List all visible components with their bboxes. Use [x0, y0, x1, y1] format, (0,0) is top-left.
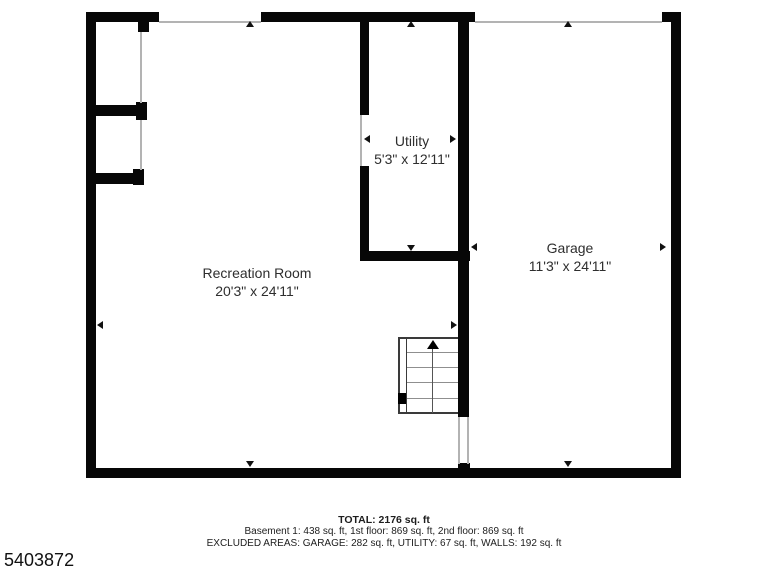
wall-top-middle-segment — [261, 12, 475, 22]
stairs-up-arrow-icon — [427, 340, 439, 349]
wall-niche-middle-cap — [136, 102, 147, 120]
arrow-left-icon — [364, 135, 370, 143]
room-label-recreation: Recreation Room 20'3" x 24'11" — [157, 264, 357, 300]
stair-direction-line — [432, 347, 433, 413]
floorplan-canvas: Recreation Room 20'3" x 24'11" Utility 5… — [0, 0, 768, 576]
arrow-up-icon — [564, 21, 572, 27]
wall-garage-divider — [458, 22, 469, 417]
summary-excluded: EXCLUDED AREAS: GARAGE: 282 sq. ft, UTIL… — [0, 538, 768, 550]
arrow-up-icon — [246, 21, 254, 27]
arrow-down-icon — [564, 461, 572, 467]
room-label-garage: Garage 11'3" x 24'11" — [490, 239, 650, 275]
wall-utility-bottom — [360, 251, 470, 261]
wall-bottom — [86, 468, 681, 478]
arrow-up-icon — [407, 21, 415, 27]
opening-line-niche-lower — [140, 120, 142, 170]
summary-total: TOTAL: 2176 sq. ft — [0, 514, 768, 526]
wall-utility-left-upper — [360, 22, 369, 115]
room-name: Recreation Room — [157, 264, 357, 282]
arrow-left-icon — [471, 243, 477, 251]
room-name: Garage — [490, 239, 650, 257]
opening-line-niche-upper — [140, 32, 142, 103]
summary-floors: Basement 1: 438 sq. ft, 1st floor: 869 s… — [0, 526, 768, 538]
opening-line-passage-left — [458, 417, 460, 464]
stair-newel-block — [398, 393, 406, 404]
room-dimensions: 20'3" x 24'11" — [157, 282, 357, 300]
wall-top-left-segment — [86, 12, 159, 22]
stair-rail — [406, 339, 407, 412]
arrow-down-icon — [246, 461, 254, 467]
arrow-right-icon — [451, 321, 457, 329]
wall-left — [86, 12, 96, 478]
wall-right — [671, 12, 681, 478]
arrow-down-icon — [407, 245, 415, 251]
plan-id: 5403872 — [4, 549, 74, 571]
area-summary: TOTAL: 2176 sq. ft Basement 1: 438 sq. f… — [0, 514, 768, 550]
wall-top-left-stub — [138, 22, 149, 32]
wall-niche-bottom-bar — [86, 173, 134, 184]
arrow-right-icon — [450, 135, 456, 143]
opening-line-passage-right — [467, 417, 469, 464]
wall-niche-bottom-cap — [133, 169, 144, 185]
room-dimensions: 5'3" x 12'11" — [352, 150, 472, 168]
room-dimensions: 11'3" x 24'11" — [490, 257, 650, 275]
staircase — [398, 337, 458, 414]
wall-niche-middle-bar — [86, 105, 137, 116]
arrow-left-icon — [97, 321, 103, 329]
wall-utility-left-lower — [360, 166, 369, 261]
arrow-right-icon — [660, 243, 666, 251]
